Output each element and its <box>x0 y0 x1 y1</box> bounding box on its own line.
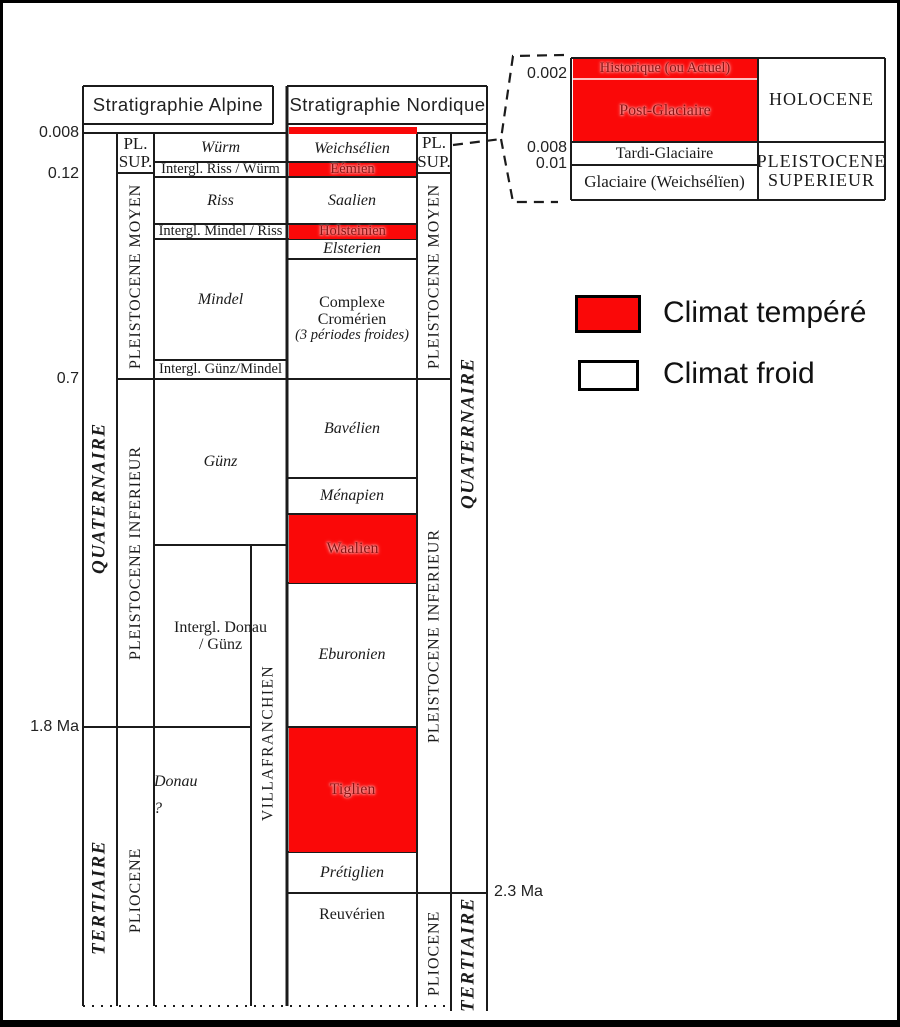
legend-swatch-tempere <box>575 295 641 333</box>
cell-intergl-gunz-mindel: Intergl. Günz/Mindel <box>154 360 287 379</box>
cell-mindel: Mindel <box>154 239 287 360</box>
cell-saalien: Saalien <box>287 177 417 224</box>
inset-label-001: 0.01 <box>521 155 567 172</box>
col-left-pliocene: PLIOCENE <box>117 808 154 973</box>
cell-intergl-riss-wurm: Intergl. Riss / Würm <box>154 162 287 177</box>
col-villafranchien: VILLAFRANCHIEN <box>251 598 287 888</box>
cromerien-line3: (3 périodes froides) <box>295 328 409 344</box>
axis-label-012: 0.12 <box>25 165 79 183</box>
cell-waalien: Waalien <box>289 515 416 583</box>
cell-bavelien: Bavélien <box>287 379 417 478</box>
stratigraphy-chart: Eémien Holsteinien Waalien Tiglien Strat… <box>0 0 900 1027</box>
cell-wurm: Würm <box>154 133 287 162</box>
cell-menapien: Ménapien <box>287 478 417 514</box>
inset-cell-tardi-glaciaire: Tardi-Glaciaire <box>571 142 758 165</box>
cromerien-line2: Cromérien <box>318 311 386 328</box>
cell-pretiglien: Prétiglien <box>287 852 417 893</box>
col-left-quaternaire: QUATERNAIRE <box>83 358 117 638</box>
col-right-pleistocene-moyen: PLEISTOCENE MOYEN <box>417 175 451 377</box>
col-left-pleistocene-moyen: PLEISTOCENE MOYEN <box>117 175 154 377</box>
cell-intergl-mindel-riss: Intergl. Mindel / Riss <box>154 224 287 239</box>
col-right-pliocene: PLIOCENE <box>417 898 451 1008</box>
inset-pleistocene-line1: PLEISTOCENE <box>757 152 887 171</box>
cell-reuverien: Reuvérien <box>287 893 417 1006</box>
cell-gunz: Günz <box>154 379 287 545</box>
holocene-red-bar <box>289 127 417 134</box>
col-left-tertiaire: TERTIAIRE <box>83 813 117 983</box>
legend-swatch-froid <box>578 360 639 391</box>
cromerien-line1: Complexe <box>319 294 385 311</box>
donau-question: ? <box>154 800 162 817</box>
col-right-tertiaire: TERTIAIRE <box>451 896 487 1014</box>
col-left-pl: PL. <box>117 135 154 154</box>
col-right-pl: PL. <box>417 134 451 153</box>
axis-label-18ma: 1.8 Ma <box>13 718 79 736</box>
header-stratigraphie-nordique: Stratigraphie Nordique <box>287 86 488 124</box>
inset-cell-holocene: HOLOCENE <box>758 58 885 142</box>
inset-pleistocene-line2: SUPERIEUR <box>768 171 875 190</box>
cell-holsteinien: Holsteinien <box>289 225 416 239</box>
inset-cell-post-glaciaire: Post-Glaciaire <box>573 81 757 141</box>
inset-cell-historique: Historique (ou Actuel) <box>573 59 757 80</box>
col-right-quaternaire: QUATERNAIRE <box>451 243 487 623</box>
axis-label-23ma: 2.3 Ma <box>494 883 558 901</box>
cell-eemien: Eémien <box>289 163 416 176</box>
inset-cell-glaciaire: Glaciaire (Weichsélïen) <box>571 165 758 200</box>
cell-weichselien: Weichsélien <box>287 134 417 163</box>
cell-cromerien: Complexe Cromérien (3 périodes froides) <box>287 259 417 379</box>
donau-label: Donau <box>154 773 198 790</box>
cell-riss: Riss <box>154 177 287 224</box>
legend-label-tempere: Climat tempéré <box>663 291 888 335</box>
col-right-pleistocene-inferieur: PLEISTOCENE INFERIEUR <box>417 381 451 891</box>
col-right-sup: SUP. <box>417 152 451 172</box>
axis-label-0008: 0.008 <box>19 124 79 142</box>
cell-tiglien: Tiglien <box>289 728 416 852</box>
intergl-donau-line2: / Günz <box>199 636 242 653</box>
legend-label-froid: Climat froid <box>663 353 888 395</box>
inset-cell-pleistocene-superieur: PLEISTOCENE SUPERIEUR <box>758 142 885 200</box>
col-left-sup: SUP. <box>117 153 154 172</box>
cell-eburonien: Eburonien <box>287 583 417 727</box>
axis-label-07: 0.7 <box>31 370 79 388</box>
cell-elsterien: Elsterien <box>287 239 417 259</box>
inset-label-0008: 0.008 <box>511 139 567 156</box>
header-stratigraphie-alpine: Stratigraphie Alpine <box>83 86 273 124</box>
col-left-pleistocene-inferieur: PLEISTOCENE INFERIEUR <box>117 381 154 725</box>
inset-label-0002: 0.002 <box>515 65 567 82</box>
